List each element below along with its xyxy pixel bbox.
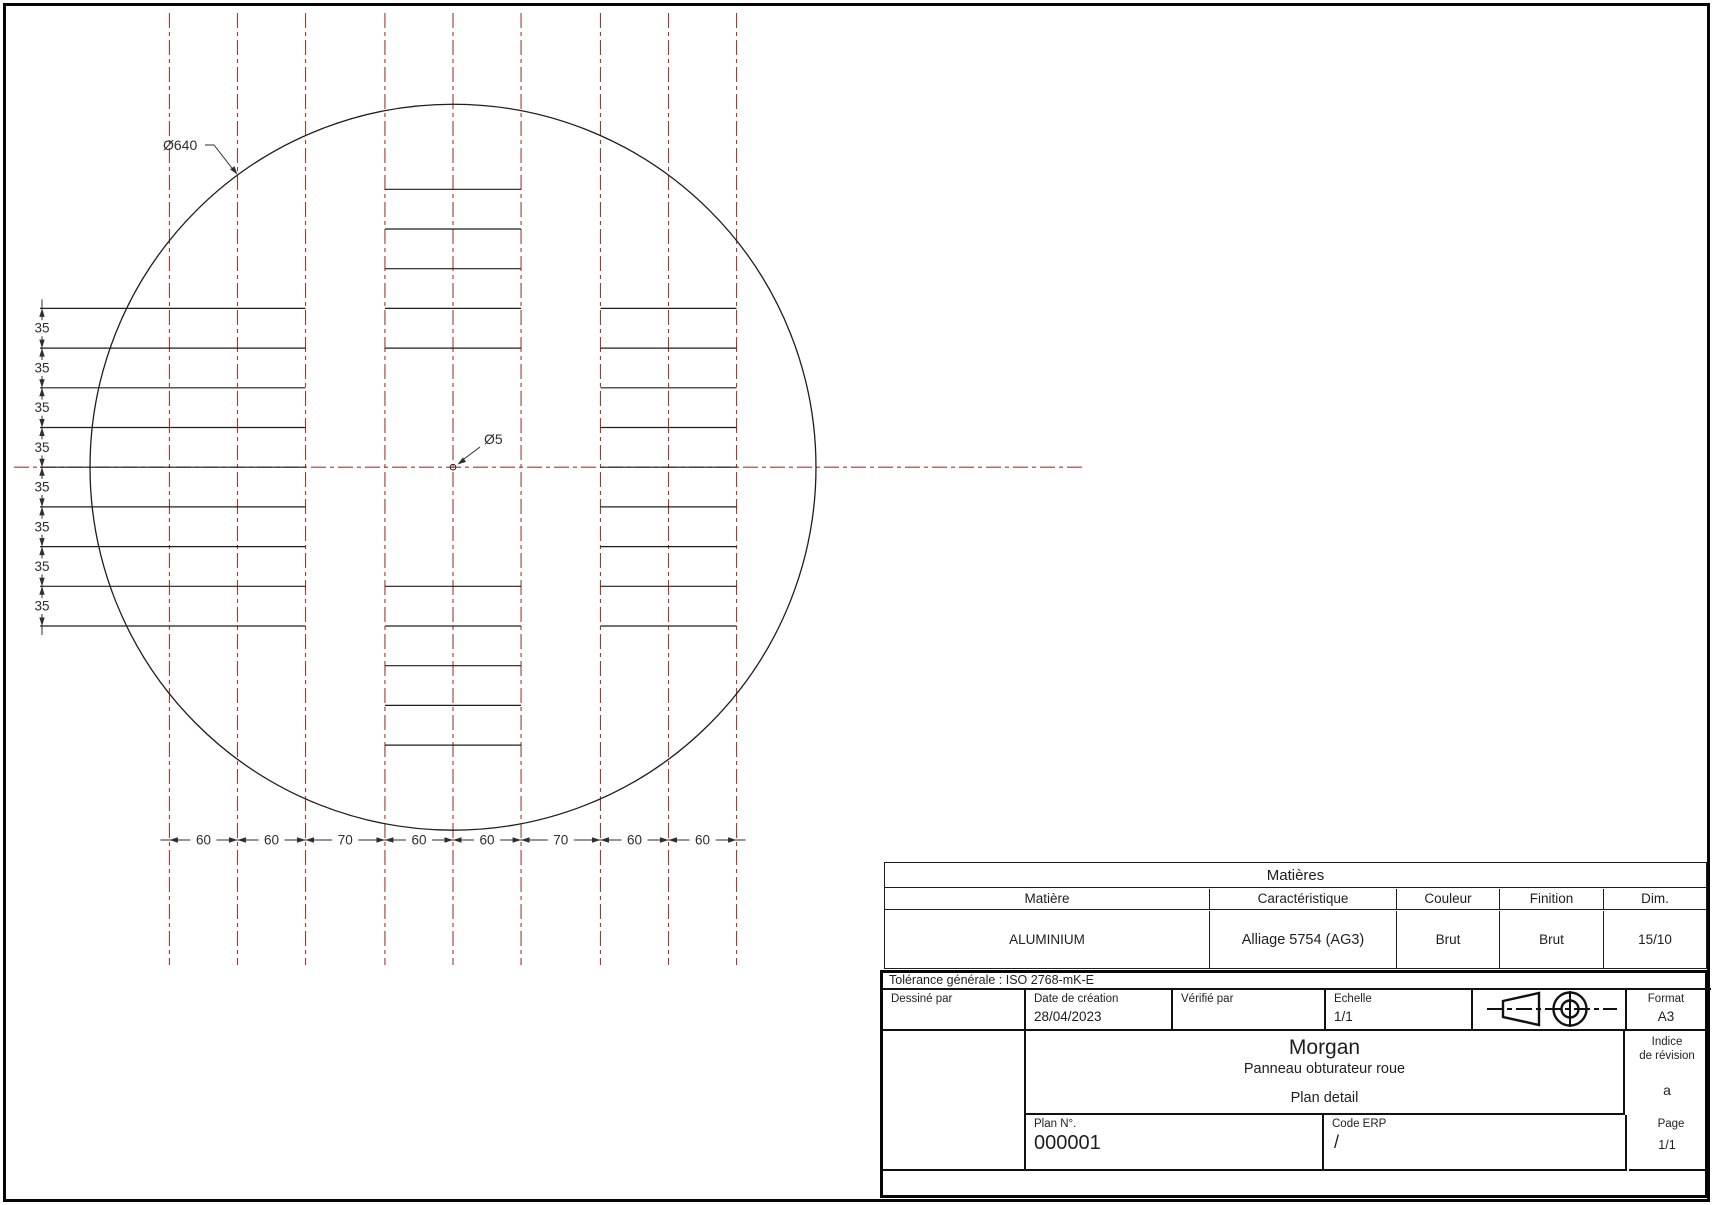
plan-number-cell: Plan N°. 000001 (1026, 1115, 1324, 1171)
bottom-dim-arrow-left (306, 837, 315, 842)
diameter-leader (205, 145, 235, 172)
materials-value-matiere: ALUMINIUM (885, 911, 1209, 968)
title-cell: Morgan Panneau obturateur roue Plan deta… (1026, 1031, 1625, 1115)
projection-symbol-cell (1473, 990, 1627, 1031)
left-dim-arrow-up (39, 547, 44, 556)
bottom-dim-arrow-right (728, 837, 737, 842)
materials-header-dim: Dim. (1603, 889, 1706, 910)
format-label: Format (1627, 990, 1705, 1005)
materials-value-couleur: Brut (1396, 911, 1499, 968)
bottom-dim-arrow-right (660, 837, 669, 842)
row-dim-label: 35 (34, 519, 49, 534)
revision-label-line1: Indice (1652, 1036, 1683, 1048)
bottom-dim-arrow-right (513, 837, 522, 842)
erp-code-label: Code ERP (1324, 1115, 1625, 1130)
materials-header-couleur: Couleur (1396, 889, 1499, 910)
creation-date-cell: Date de création 28/04/2023 (1026, 990, 1173, 1031)
diameter-label: Ø640 (163, 137, 197, 153)
title-block: Tolérance générale : ISO 2768-mK-E Dessi… (880, 970, 1708, 1198)
column-dim-label: 70 (553, 833, 568, 848)
bottom-dim-arrow-right (445, 837, 454, 842)
scale-value: 1/1 (1326, 1005, 1471, 1024)
general-tolerance: Tolérance générale : ISO 2768-mK-E (883, 973, 1711, 990)
plan-number-label: Plan N°. (1026, 1115, 1322, 1130)
left-dim-arrow-up (39, 507, 44, 516)
plan-type: Plan detail (1026, 1090, 1623, 1106)
bottom-dim-arrow-left (385, 837, 394, 842)
materials-table: Matières Matière Caractéristique Couleur… (884, 862, 1707, 969)
bottom-dim-arrow-left (237, 837, 246, 842)
first-angle-projection-icon (1473, 990, 1625, 1029)
row-dim-label: 35 (34, 559, 49, 574)
left-dim-arrow-down (39, 379, 44, 388)
bottom-dim-arrow-left (453, 837, 462, 842)
page-cell: Page 1/1 (1629, 1115, 1705, 1171)
revision-label: Indice de révision (1629, 1031, 1705, 1064)
drawn-by-signature-cell (883, 1031, 1026, 1171)
materials-header-matiere: Matière (885, 889, 1209, 910)
materials-value-dim: 15/10 (1603, 911, 1706, 968)
scale-cell: Echelle 1/1 (1326, 990, 1473, 1031)
part-title: Panneau obturateur roue (1026, 1061, 1623, 1077)
left-dim-arrow-down (39, 538, 44, 547)
bottom-dim-arrow-right (229, 837, 238, 842)
materials-header-caracteristique: Caractéristique (1209, 889, 1396, 910)
drawing-sheet: { "drawing": { "diameter_label": "Ø640",… (0, 0, 1713, 1205)
left-dim-arrow-down (39, 498, 44, 507)
format-value: A3 (1627, 1005, 1705, 1024)
left-dim-arrow-up (39, 427, 44, 436)
erp-code-value: / (1324, 1130, 1625, 1153)
row-dim-label: 35 (34, 400, 49, 415)
row-dim-label: 35 (34, 360, 49, 375)
hole-label: Ø5 (484, 431, 503, 447)
column-dim-label: 60 (480, 833, 495, 848)
row-dim-label: 35 (34, 321, 49, 336)
materials-value-caracteristique: Alliage 5754 (AG3) (1209, 911, 1396, 968)
bottom-dim-arrow-left (521, 837, 530, 842)
erp-code-cell: Code ERP / (1324, 1115, 1627, 1171)
column-dim-label: 60 (627, 833, 642, 848)
column-dim-label: 60 (264, 833, 279, 848)
left-dim-arrow-up (39, 467, 44, 476)
bottom-dim-arrow-left (600, 837, 609, 842)
column-dim-label: 70 (338, 833, 353, 848)
scale-label: Echelle (1326, 990, 1471, 1005)
company-title: Morgan (1026, 1036, 1623, 1059)
checked-by-cell: Vérifié par (1173, 990, 1326, 1031)
column-dim-label: 60 (411, 833, 426, 848)
left-dim-arrow-down (39, 459, 44, 468)
left-dim-arrow-down (39, 618, 44, 627)
bottom-dim-arrow-right (592, 837, 601, 842)
left-dim-arrow-up (39, 388, 44, 397)
left-dim-arrow-up (39, 308, 44, 317)
left-dim-arrow-up (39, 348, 44, 357)
bottom-dim-arrow-right (297, 837, 306, 842)
left-dim-arrow-down (39, 419, 44, 428)
checked-by-value (1173, 1005, 1324, 1009)
format-cell: Format A3 (1627, 990, 1705, 1031)
bottom-dim-arrow-left (669, 837, 678, 842)
plan-number-value: 000001 (1026, 1130, 1322, 1155)
column-dim-label: 60 (196, 833, 211, 848)
creation-date-value: 28/04/2023 (1026, 1005, 1171, 1024)
materials-header-finition: Finition (1499, 889, 1603, 910)
row-dim-label: 35 (34, 599, 49, 614)
materials-table-title: Matières (885, 863, 1706, 888)
row-dim-label: 35 (34, 480, 49, 495)
drawn-by-label: Dessiné par (883, 990, 1024, 1005)
column-dim-label: 60 (695, 833, 710, 848)
drawn-by-value (883, 1005, 1024, 1009)
page-value: 1/1 (1629, 1138, 1705, 1152)
bottom-dim-arrow-left (169, 837, 178, 842)
bottom-dim-arrow-right (376, 837, 385, 842)
materials-value-finition: Brut (1499, 911, 1603, 968)
left-dim-arrow-up (39, 586, 44, 595)
left-dim-arrow-down (39, 340, 44, 349)
creation-date-label: Date de création (1026, 990, 1171, 1005)
left-dim-arrow-down (39, 578, 44, 587)
revision-value: a (1629, 1082, 1705, 1098)
page-label: Page (1629, 1115, 1705, 1130)
row-dim-label: 35 (34, 440, 49, 455)
checked-by-label: Vérifié par (1173, 990, 1324, 1005)
drawn-by-cell: Dessiné par (883, 990, 1026, 1031)
revision-label-line2: de révision (1639, 1050, 1695, 1062)
